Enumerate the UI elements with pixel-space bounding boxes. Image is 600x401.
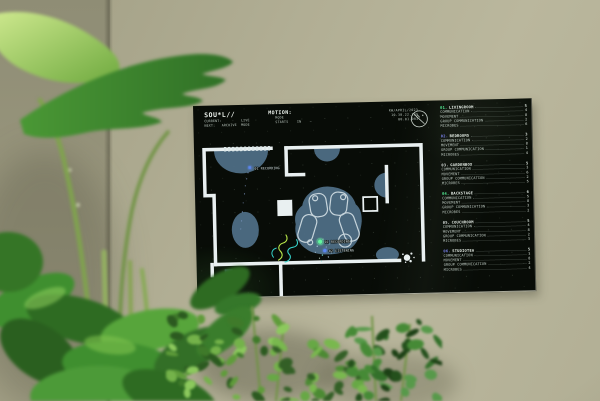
photo-scene: SOU*L// CURRENT: LIVE NEXT: ARCHIVE MODE… [0,0,600,401]
bush-leaf [232,394,241,400]
bush-leaf [374,327,392,344]
leader-dots [460,125,524,127]
bush-leaf [419,347,430,361]
metric-value: 2 [527,208,529,213]
metric-row: MICROBES3 [443,237,530,244]
stem-node [69,169,72,172]
leader-dots [463,240,527,242]
bush-leaf [289,397,302,401]
leader-dots [463,268,527,270]
room-entry[interactable]: 01.LIVINGROOM5COMMUNICATION4MOVEMENT8GRO… [440,103,528,128]
metric-value: 5 [526,179,528,184]
stem-node [76,203,79,206]
bush-leaf [395,322,410,333]
room-entry[interactable]: 03.GARDENBOX5COMMUNICATION3MOVEMENT6GROU… [441,161,529,186]
bush-leaf [403,373,417,384]
table-outline [363,197,377,211]
bush-leaf [431,333,442,350]
bush-leaf [219,369,229,379]
metric-value: 3 [528,237,530,242]
leader-dots [461,153,525,155]
metric-row: MICROBES6 [440,122,527,129]
bush-leaf [169,331,184,341]
bush-leaf [214,339,224,344]
bush-leaf [230,326,243,337]
metric-value: 6 [525,122,527,127]
bush-leaf [430,390,442,401]
bush-leaf [226,315,246,329]
room-entry[interactable]: 05.COUCHROOM5COMMUNICATION4MOVEMENT8GROU… [443,218,531,243]
bush-leaf [415,318,423,326]
meta-countdown: 00.01.093 [343,117,418,123]
bush-leaf [251,335,262,345]
bush-stem [372,316,376,401]
bush-leaf [375,396,391,401]
leader-dots [485,120,524,121]
metric-value: 4 [528,266,530,271]
metric-label: MICROBES [443,239,461,244]
metric-row: MICROBES2 [442,208,529,215]
bush-leaf [202,375,213,386]
bush-leaf [322,337,341,351]
bush-leaf [355,393,363,401]
bush-leaf [166,350,179,357]
leader-dots [462,211,526,213]
leader-dots [488,264,527,265]
leader-dots [485,149,524,150]
bush-leaf [197,314,206,324]
leader-dots [487,206,526,207]
room-entry[interactable]: 06.STUDIOTEA5COMMUNICATION3MOVEMENT8GROU… [443,247,531,272]
leader-dots [487,235,526,236]
bush-leaf [260,346,268,356]
bush-leaf [299,390,310,401]
metric-value: 4 [526,151,528,156]
foreground-bush [166,294,442,401]
metric-label: MICROBES [444,267,462,272]
header-meta: KW/APRIL/2023 10.30.22.199 00.01.093 [343,108,418,123]
metric-row: MICROBES4 [441,151,528,158]
leader-dots [461,182,525,184]
room-entry[interactable]: 04.BACKSTAGE6COMMUNICATION5MOVEMENT8GROU… [442,190,530,215]
metric-label: MICROBES [442,210,460,215]
metric-row: MICROBES4 [444,266,531,273]
room-metrics-list: 01.LIVINGROOM5COMMUNICATION4MOVEMENT8GRO… [440,103,531,277]
leader-dots [486,177,525,178]
metric-row: MICROBES5 [442,179,529,186]
compass-icon[interactable] [409,109,429,129]
splatter [402,252,415,263]
metric-label: MICROBES [440,124,458,129]
bush-leaf [420,325,434,335]
bush-leaf [424,369,438,381]
bush-leaf [283,386,293,394]
metric-label: MICROBES [442,181,460,186]
metric-label: MICROBES [441,152,459,157]
room-entry[interactable]: 02.BEDROOMS3COMMUNICATION2MOVEMENT8GROUP… [441,132,529,157]
